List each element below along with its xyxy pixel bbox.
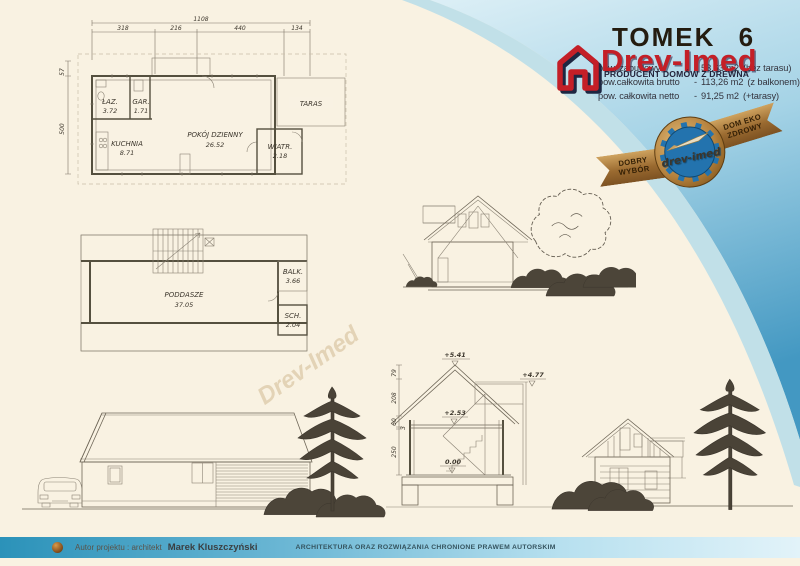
elevation-side-long xyxy=(16,383,388,533)
badge-ribbon-left-text: DOBRY WYBÓR xyxy=(609,155,659,179)
dim-500: 500 xyxy=(59,123,66,135)
drev-imed-house-logo-icon xyxy=(552,40,606,94)
section-dim-3: 3 xyxy=(400,426,407,430)
room-taras-name: TARAS xyxy=(300,100,323,108)
badge-seal: drev-imed xyxy=(647,109,732,194)
room-pokoj-name: POKÓJ DZIENNY xyxy=(187,130,243,139)
section-dim-60: 60 xyxy=(391,418,398,426)
room-laz-name: ŁAZ. xyxy=(101,98,118,106)
level-balcony: +4.77 xyxy=(522,371,544,379)
room-sch-area: 2.04 xyxy=(286,321,300,329)
elevation-gable-front xyxy=(398,186,636,306)
deciduous-tree xyxy=(531,189,611,257)
level-ground-floor: 0.00 xyxy=(445,458,462,466)
ground-floor-plan: 1108 318 216 440 134 57 500 xyxy=(52,14,360,206)
room-balk-name: BALK. xyxy=(283,268,303,276)
section-dim-250: 250 xyxy=(391,446,398,458)
cross-section: +5.41 +4.77 +2.53 0.00 79 208 60 3 250 xyxy=(386,346,558,524)
room-gar-area: 1.71 xyxy=(134,107,148,115)
dim-440: 440 xyxy=(234,25,246,32)
room-pokoj-area: 26.52 xyxy=(206,141,225,149)
room-balk-area: 3.66 xyxy=(286,277,300,285)
room-wiatr-name: WIATR. xyxy=(268,143,293,151)
footer-bar: Autor projektu : architekt Marek Kluszcz… xyxy=(0,537,800,558)
car-drawing xyxy=(38,478,82,508)
room-poddasze-name: PODDASZE xyxy=(165,291,205,299)
bush xyxy=(583,267,636,287)
copyright-notice: ARCHITEKTURA ORAZ ROZWIĄZANIA CHRONIONE … xyxy=(295,544,555,551)
bush xyxy=(406,277,437,287)
brand-tagline: PRODUCENT DOMÓW Z DREWNA xyxy=(604,69,749,79)
section-dim-208: 208 xyxy=(391,392,398,404)
dim-216: 216 xyxy=(170,25,182,32)
spec-label: pow. całkowita netto xyxy=(598,91,690,101)
room-sch-name: SCH. xyxy=(285,312,302,320)
room-kuchnia-area: 8.71 xyxy=(120,149,134,157)
page: Drev-Imed 1108 318 216 440 134 57 500 xyxy=(0,0,800,566)
section-dim-79: 79 xyxy=(391,369,398,377)
dim-57: 57 xyxy=(59,68,66,76)
level-attic-floor: +2.53 xyxy=(444,409,466,417)
room-gar-name: GAR. xyxy=(132,98,149,106)
room-kuchnia-name: KUCHNIA xyxy=(111,140,143,148)
level-ridge: +5.41 xyxy=(444,351,465,359)
room-wiatr-area: 2.18 xyxy=(273,152,287,160)
room-poddasze-area: 37.05 xyxy=(175,301,194,309)
author-name: Marek Kluszczyński xyxy=(168,542,258,553)
dim-318: 318 xyxy=(117,25,129,32)
badge-ribbon-right-text: DOM EKO ZDROWY xyxy=(716,111,771,143)
elevation-gable-balcony xyxy=(550,376,800,521)
room-laz-area: 3.72 xyxy=(103,107,117,115)
dim-total: 1108 xyxy=(193,16,208,23)
spec-value: 91,25 m2 xyxy=(701,91,739,101)
pine-tree xyxy=(694,379,765,509)
dim-134: 134 xyxy=(291,25,303,32)
footer-dot-icon xyxy=(52,542,63,553)
attic-floor-plan: PODDASZE 37.05 BALK. 3.66 SCH. 2.04 xyxy=(52,223,357,365)
spec-dash: - xyxy=(694,91,697,101)
author-label: Autor projektu : architekt xyxy=(75,543,162,552)
